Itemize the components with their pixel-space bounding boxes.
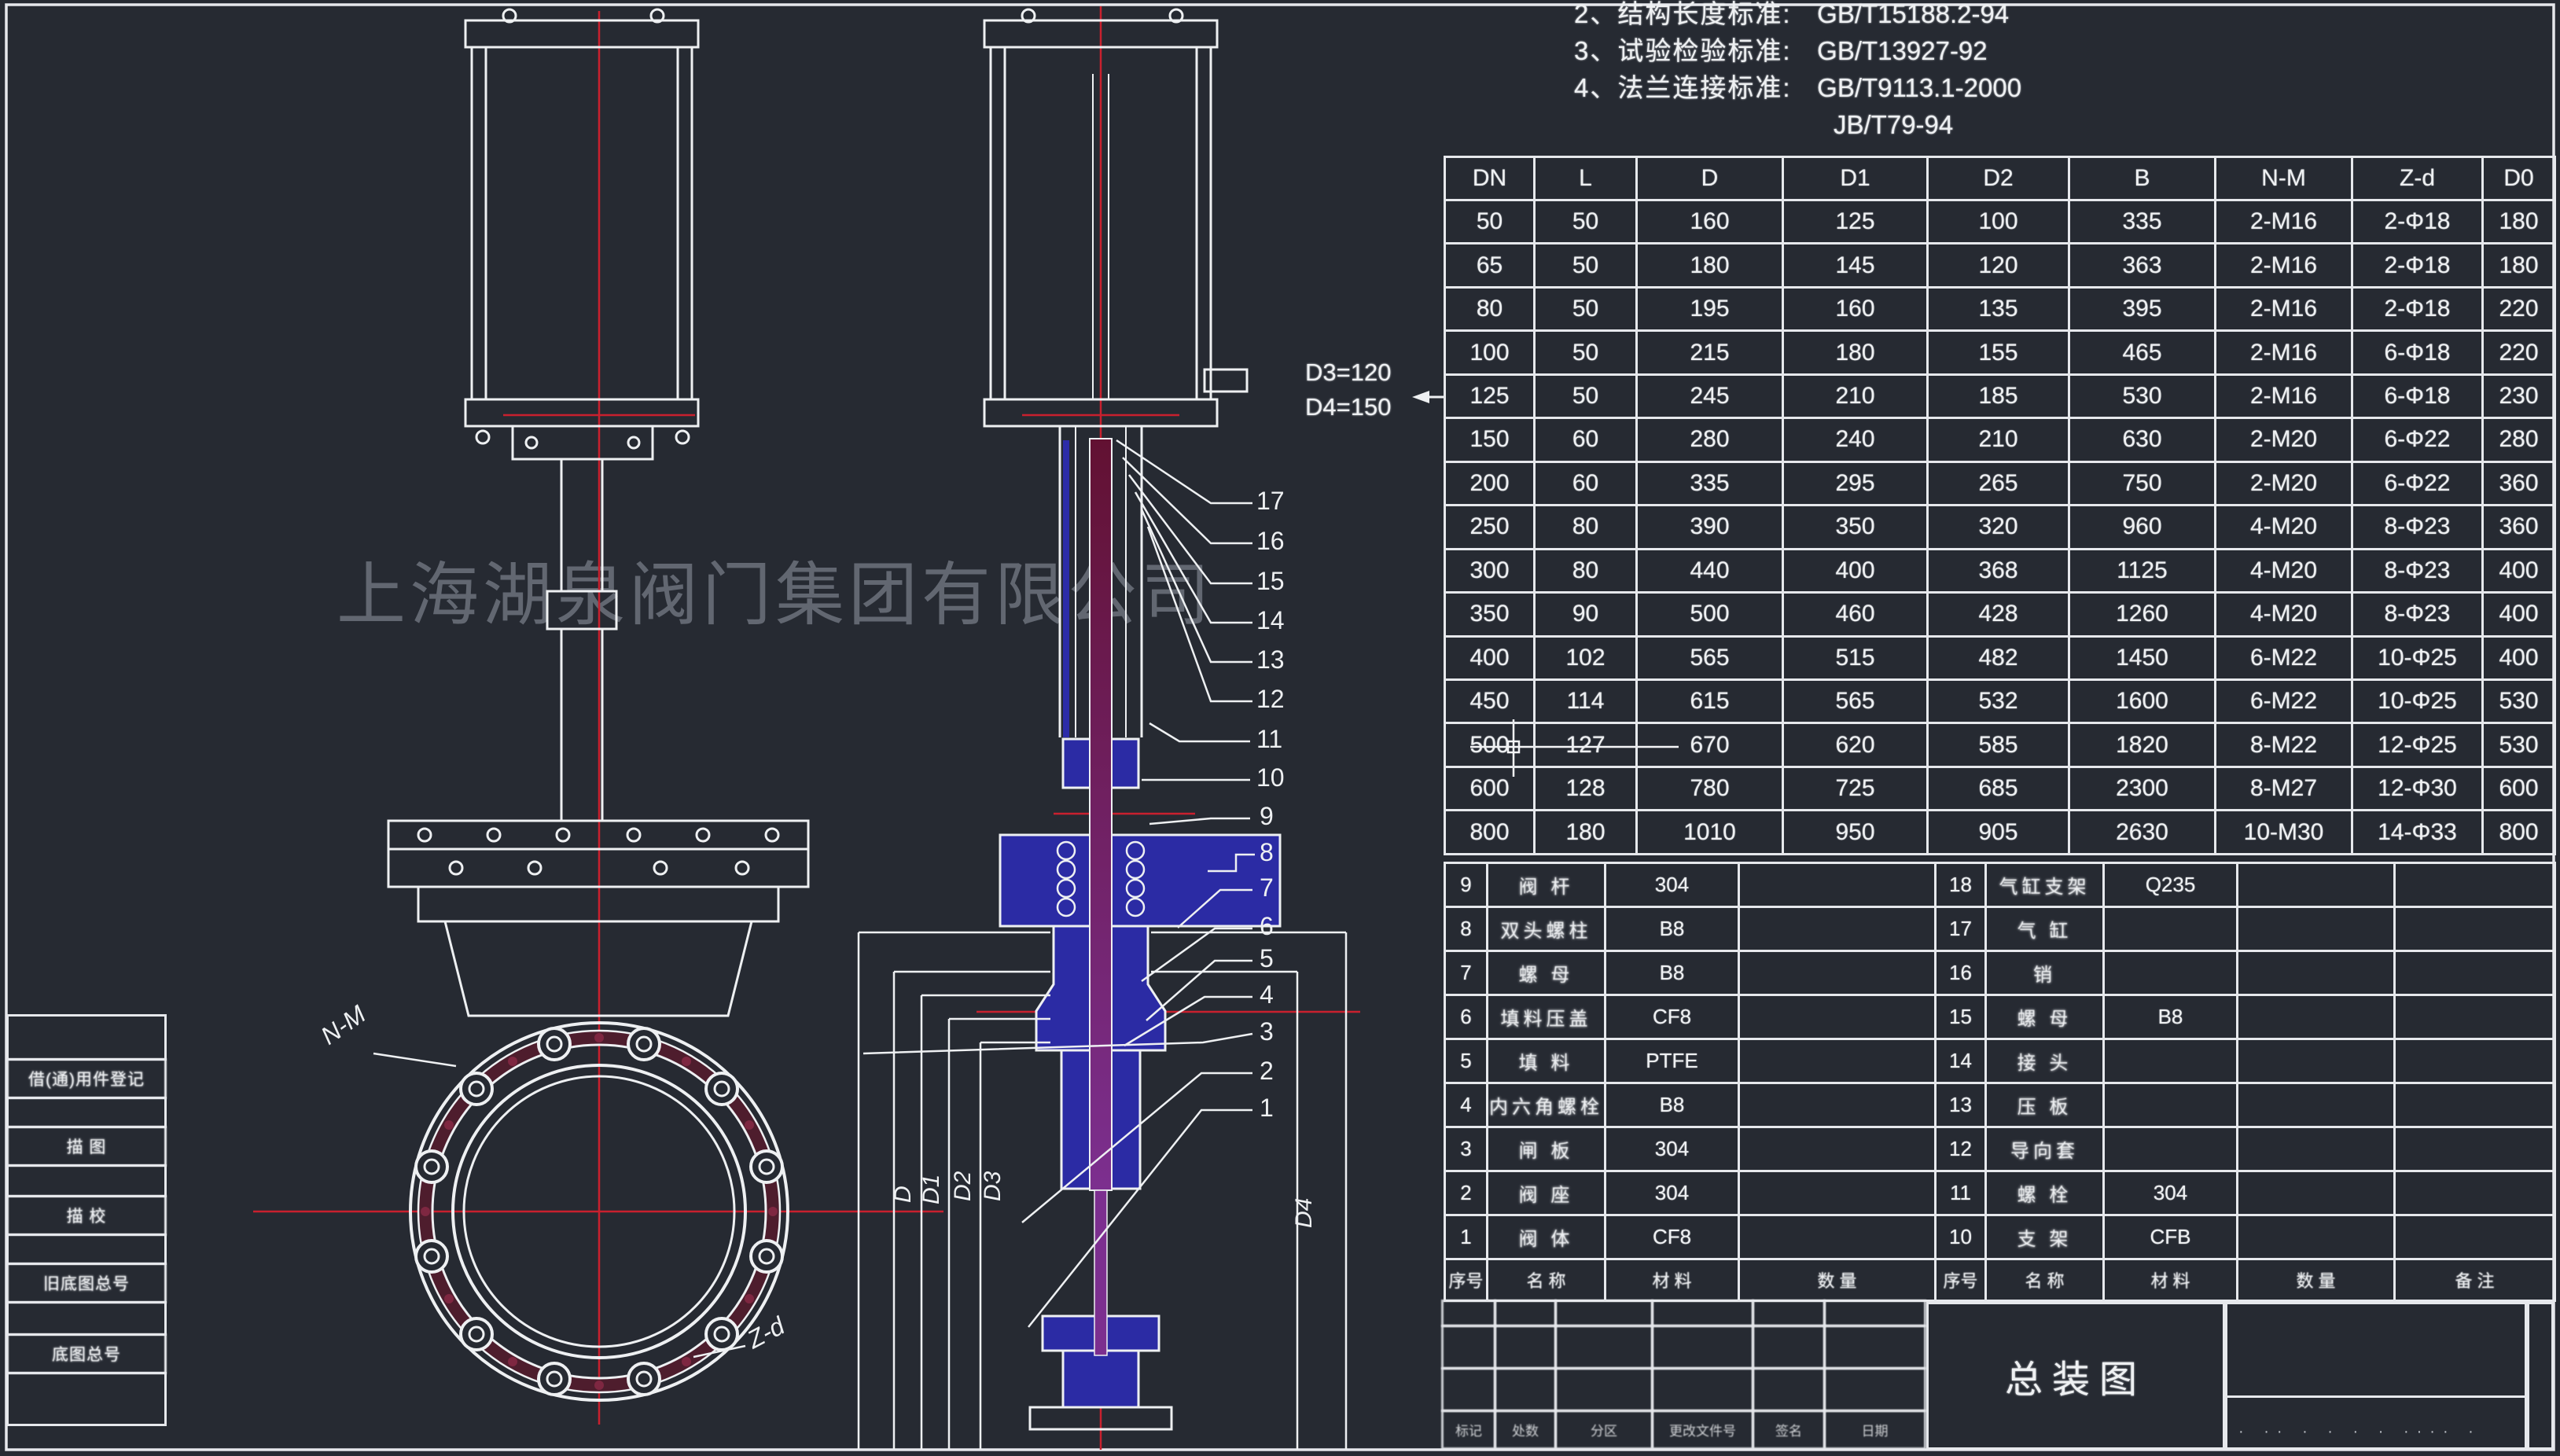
col-header: D1 [1783,157,1928,200]
nm-label: N-M [315,999,370,1050]
svg-text:16: 16 [1256,527,1285,555]
table-row: 9阀 杆304 [1445,863,1936,907]
margin-label: 底图总号 [6,1333,167,1374]
table-row: 11螺 栓304 [1936,1171,2555,1215]
table-cell: 1010 [1637,811,1783,855]
table-cell: 180 [1783,331,1928,374]
table-row: 65501801451203632-M162-Φ18180 [1445,244,2555,287]
margin-label: 描 校 [6,1195,167,1236]
svg-text:10: 10 [1256,763,1285,792]
table-cell [2238,863,2395,907]
table-cell: CFB [2104,1215,2238,1259]
table-row: 18气缸支架Q235 [1936,863,2555,907]
annotation-arrow [1412,391,1445,403]
bom-col-header: 数 量 [1739,1259,1936,1301]
bom-col-header: 备 注 [2395,1259,2555,1301]
table-row: 2阀 座304 [1445,1171,1936,1215]
margin-label: 借(通)用件登记 [6,1058,167,1099]
table-cell: 670 [1637,723,1783,767]
svg-text:15: 15 [1256,567,1285,595]
table-cell: 2-Φ18 [2352,287,2483,330]
table-cell [2238,995,2395,1039]
svg-text:13: 13 [1256,645,1285,674]
table-cell: 14-Φ33 [2352,811,2483,855]
table-cell: 335 [2069,200,2216,244]
table-cell [1739,863,1936,907]
table-cell: 180 [2483,244,2555,287]
col-header: N-M [2216,157,2352,200]
table-cell: 482 [1928,636,2069,679]
table-cell [2395,1083,2555,1127]
table-cell [2104,1039,2238,1083]
table-cell: 280 [1637,418,1783,461]
svg-text:5: 5 [1260,944,1274,973]
table-cell: 615 [1637,679,1783,722]
table-cell: 600 [1445,767,1535,810]
table-cell: 125 [1783,200,1928,244]
margin-blank-box [6,1372,167,1426]
table-cell: 500 [1637,593,1783,636]
table-cell: 102 [1535,636,1637,679]
table-cell: 400 [1445,636,1535,679]
table-cell: 905 [1928,811,2069,855]
table-cell: 50 [1445,200,1535,244]
table-cell: 600 [2483,767,2555,810]
table-cell [2238,951,2395,995]
table-cell: 180 [2483,200,2555,244]
table-cell: 阀 杆 [1488,863,1606,907]
table-cell: 428 [1928,593,2069,636]
table-row: 1阀 体CF8 [1445,1215,1936,1259]
table-cell: 120 [1928,244,2069,287]
table-cell: 950 [1783,811,1928,855]
table-row: 100502151801554652-M166-Φ18220 [1445,331,2555,374]
table-cell: 65 [1445,244,1535,287]
table-row: 3509050046042812604-M208-Φ23400 [1445,593,2555,636]
dim-d3: D3 [980,1171,1006,1201]
col-header: D [1637,157,1783,200]
svg-text:14: 14 [1256,606,1285,634]
table-cell: 12 [1936,1127,1986,1171]
margin-blank-box [6,1014,167,1061]
table-cell: 585 [1928,723,2069,767]
table-cell: 530 [2483,679,2555,722]
svg-text:8: 8 [1260,838,1274,866]
table-cell: 8-M27 [2216,767,2352,810]
table-row: 13压 板 [1936,1083,2555,1127]
table-cell: 565 [1637,636,1783,679]
svg-text:4: 4 [1260,980,1274,1009]
table-cell [2395,907,2555,951]
table-row: 10支 架CFB [1936,1215,2555,1259]
table-cell: 50 [1535,331,1637,374]
table-cell: 565 [1783,679,1928,722]
table-cell: 闸 板 [1488,1127,1606,1171]
table-cell: 360 [2483,461,2555,505]
svg-text:2: 2 [1260,1057,1274,1085]
table-cell: 2-M16 [2216,331,2352,374]
table-cell [2395,1127,2555,1171]
table-cell: 11 [1936,1171,1986,1215]
tb-small-label: 签名 [1752,1410,1826,1450]
table-cell [2238,1039,2395,1083]
table-row: 12导向套 [1936,1127,2555,1171]
table-cell: 50 [1535,244,1637,287]
table-cell [2238,1127,2395,1171]
table-cell: 245 [1637,374,1783,417]
table-cell: 265 [1928,461,2069,505]
table-cell: 395 [2069,287,2216,330]
table-cell: 50 [1535,200,1637,244]
table-cell: 8-Φ23 [2352,506,2483,549]
table-cell: 50 [1535,374,1637,417]
table-cell: 6-Φ18 [2352,331,2483,374]
table-cell [1739,1083,1936,1127]
table-row: 7螺 母B8 [1445,951,1936,995]
table-row: 3闸 板304 [1445,1127,1936,1171]
table-cell: 13 [1936,1083,1986,1127]
table-cell: 1450 [2069,636,2216,679]
table-cell: 6 [1445,995,1488,1039]
table-cell: 750 [2069,461,2216,505]
margin-strip: 借(通)用件登记 描 图 描 校 旧底图总号 底图总号 [6,1017,167,1450]
table-cell [1739,995,1936,1039]
table-cell [2395,1039,2555,1083]
table-cell: 127 [1535,723,1637,767]
margin-label: 描 图 [6,1126,167,1167]
col-header: Z-d [2352,157,2483,200]
dim-table-header-row: DN L D D1 D2 B N-M Z-d D0 [1445,157,2555,200]
bom-col-header: 材 料 [2104,1259,2238,1301]
table-cell: 14 [1936,1039,1986,1083]
table-cell: B8 [1606,1083,1739,1127]
table-cell: 145 [1783,244,1928,287]
table-row: 16销 [1936,951,2555,995]
table-row: 150602802402106302-M206-Φ22280 [1445,418,2555,461]
table-cell: 2300 [2069,767,2216,810]
table-cell: 80 [1445,287,1535,330]
bom-col-header: 名 称 [1488,1259,1606,1301]
table-cell: 双头螺柱 [1488,907,1606,951]
table-cell: 400 [2483,549,2555,592]
table-cell: 12-Φ30 [2352,767,2483,810]
table-cell: 960 [2069,506,2216,549]
svg-text:6: 6 [1260,912,1274,940]
table-cell: 350 [1783,506,1928,549]
table-cell: 2 [1445,1171,1488,1215]
table-cell [1739,1127,1936,1171]
d3-d4-annotation: D3=120 D4=150 [1305,355,1391,425]
table-cell: 390 [1637,506,1783,549]
table-cell: 515 [1783,636,1928,679]
margin-blank-box [6,1164,167,1197]
table-cell: 114 [1535,679,1637,722]
table-cell: 304 [1606,863,1739,907]
table-cell: 620 [1783,723,1928,767]
table-cell: 阀 座 [1488,1171,1606,1215]
table-cell: 4-M20 [2216,506,2352,549]
table-cell: 2-Φ18 [2352,244,2483,287]
table-cell: 2-M20 [2216,461,2352,505]
table-cell: 150 [1445,418,1535,461]
table-cell: 螺 母 [1488,951,1606,995]
svg-text:3: 3 [1260,1017,1274,1046]
table-cell: 304 [2104,1171,2238,1215]
col-header: B [2069,157,2216,200]
table-cell: 1260 [2069,593,2216,636]
table-cell: B8 [2104,995,2238,1039]
table-cell: 8 [1445,907,1488,951]
table-cell: 5 [1445,1039,1488,1083]
table-cell: 160 [1637,200,1783,244]
table-cell: 内六角螺栓 [1488,1083,1606,1127]
table-cell: 18 [1936,863,1986,907]
table-cell: 800 [2483,811,2555,855]
table-cell: 220 [2483,331,2555,374]
table-cell [2238,1171,2395,1215]
dim-d1: D1 [918,1175,944,1204]
table-cell: 220 [2483,287,2555,330]
cad-sheet: 上海湖泉阀门集团有限公司 [0,0,2560,1456]
table-cell [2238,1215,2395,1259]
table-cell: 16 [1936,951,1986,995]
table-cell: 螺 栓 [1986,1171,2104,1215]
table-cell: 12-Φ25 [2352,723,2483,767]
tb-small-label: 标记 [1441,1410,1496,1450]
table-cell: 2-M20 [2216,418,2352,461]
table-row: 17气 缸 [1936,907,2555,951]
table-cell: 450 [1445,679,1535,722]
table-cell: 1600 [2069,679,2216,722]
table-cell: 725 [1783,767,1928,810]
faint-signature-dots: · ·· · · · · ···· · [2227,1423,2481,1447]
table-cell: 685 [1928,767,2069,810]
table-cell: 10-Φ25 [2352,636,2483,679]
bom-header-right: 序号 名 称 材 料 数 量 备 注 [1934,1258,2556,1302]
svg-text:11: 11 [1256,725,1282,753]
table-cell: 2-M16 [2216,244,2352,287]
table-cell [2238,907,2395,951]
tb-small-label: 日期 [1823,1410,1926,1450]
titleblock-edge-cell [2527,1302,2554,1450]
table-cell: 接 头 [1986,1039,2104,1083]
callout-numbers: 17 16 15 14 13 12 11 10 9 8 7 6 5 4 3 2 … [1256,487,1285,1122]
table-cell: 530 [2483,723,2555,767]
table-cell: 2-M16 [2216,200,2352,244]
table-cell: 2-M16 [2216,287,2352,330]
margin-label: 旧底图总号 [6,1263,167,1303]
table-cell: 螺 母 [1986,995,2104,1039]
table-cell: 180 [1637,244,1783,287]
table-cell: B8 [1606,907,1739,951]
table-cell: 250 [1445,506,1535,549]
standards-line: 4、法兰连接标准: GB/T9113.1-2000 [1574,69,2021,106]
table-row: 8双头螺柱B8 [1445,907,1936,951]
table-cell [2395,1215,2555,1259]
table-cell: 6-Φ18 [2352,374,2483,417]
table-row: 50501601251003352-M162-Φ18180 [1445,200,2555,244]
col-header: DN [1445,157,1535,200]
table-cell: 300 [1445,549,1535,592]
table-cell: B8 [1606,951,1739,995]
standards-line: 2、结构长度标准: GB/T15188.2-94 [1574,0,2021,32]
table-cell: 4-M20 [2216,549,2352,592]
table-cell [1739,1039,1936,1083]
table-cell: 3 [1445,1127,1488,1171]
table-cell: 363 [2069,244,2216,287]
table-cell: 6-M22 [2216,636,2352,679]
valve-stem [1090,439,1112,1355]
table-row: 125502452101855302-M166-Φ18230 [1445,374,2555,417]
table-cell: 368 [1928,549,2069,592]
dim-d4: D4 [1291,1198,1317,1228]
table-cell: 10-M30 [2216,811,2352,855]
table-row: 60012878072568523008-M2712-Φ30600 [1445,767,2555,810]
col-header: D0 [2483,157,2555,200]
table-cell: 6-Φ22 [2352,418,2483,461]
table-cell: 10-Φ25 [2352,679,2483,722]
titleblock-right: · ·· · · · · ···· · [2225,1302,2527,1450]
table-cell: 125 [1445,374,1535,417]
margin-blank-box [6,1234,167,1265]
table-cell: 350 [1445,593,1535,636]
table-cell: 335 [1637,461,1783,505]
table-cell: 2-Φ18 [2352,200,2483,244]
titleblock-right-lower: · ·· · · · · ···· · [2225,1395,2527,1450]
table-cell: 15 [1936,995,1986,1039]
drawing-title: 总装图 [1926,1302,2225,1450]
table-cell: 530 [2069,374,2216,417]
bom-col-header: 序号 [1445,1259,1488,1301]
tb-small-label: 更改文件号 [1651,1410,1754,1450]
table-cell: 1 [1445,1215,1488,1259]
table-cell: 压 板 [1986,1083,2104,1127]
table-cell [2104,907,2238,951]
table-cell [2104,1083,2238,1127]
bom-col-header: 材 料 [1606,1259,1739,1301]
table-cell: 60 [1535,461,1637,505]
table-cell: 销 [1986,951,2104,995]
table-cell: 1125 [2069,549,2216,592]
table-row: 6填料压盖CF8 [1445,995,1936,1039]
table-cell: 200 [1445,461,1535,505]
dim-d: D [890,1186,916,1203]
table-cell: 导向套 [1986,1127,2104,1171]
table-cell: 360 [2483,506,2555,549]
table-cell: 440 [1637,549,1783,592]
bom-table-left: 9阀 杆3048双头螺柱B87螺 母B86填料压盖CF85填 料PTFE4内六角… [1444,862,1937,1260]
svg-text:1: 1 [1260,1094,1274,1122]
table-cell: 10 [1936,1215,1986,1259]
table-cell: 60 [1535,418,1637,461]
margin-blank-box [6,1097,167,1128]
table-row: 8001801010950905263010-M3014-Φ33800 [1445,811,2555,855]
table-cell: 8-Φ23 [2352,593,2483,636]
table-cell: 320 [1928,506,2069,549]
table-cell: 阀 体 [1488,1215,1606,1259]
standards-line: 3、试验检验标准: GB/T13927-92 [1574,32,2021,69]
table-cell [1739,907,1936,951]
titleblock-grid: 标记 处数 分区 更改文件号 签名 日期 [1444,1302,1926,1450]
table-cell: 80 [1535,506,1637,549]
table-cell: 210 [1928,418,2069,461]
table-row: 250803903503209604-M208-Φ23360 [1445,506,2555,549]
table-cell: 800 [1445,811,1535,855]
table-cell: 780 [1637,767,1783,810]
table-cell: 215 [1637,331,1783,374]
margin-blank-box [6,1301,167,1336]
table-cell: 8-Φ23 [2352,549,2483,592]
table-cell [2395,863,2555,907]
bom-header-left: 序号 名 称 材 料 数 量 [1444,1258,1937,1302]
table-cell [2395,1171,2555,1215]
table-cell: 155 [1928,331,2069,374]
table-cell: 230 [2483,374,2555,417]
table-row: 45011461556553216006-M2210-Φ25530 [1445,679,2555,722]
table-cell: 4-M20 [2216,593,2352,636]
table-cell: 17 [1936,907,1986,951]
table-cell: 2630 [2069,811,2216,855]
table-cell: Q235 [2104,863,2238,907]
table-cell: 4 [1445,1083,1488,1127]
table-cell: 气缸支架 [1986,863,2104,907]
table-cell: 400 [2483,593,2555,636]
table-row: 15螺 母B8 [1936,995,2555,1039]
table-cell: 400 [1783,549,1928,592]
table-cell: 填 料 [1488,1039,1606,1083]
bom-col-header: 数 量 [2238,1259,2395,1301]
table-cell: 6-Φ22 [2352,461,2483,505]
table-cell: 500 [1445,723,1535,767]
table-cell: 100 [1445,331,1535,374]
col-header: L [1535,157,1637,200]
table-cell: 128 [1535,767,1637,810]
table-cell: 填料压盖 [1488,995,1606,1039]
col-header: D2 [1928,157,2069,200]
svg-text:17: 17 [1256,487,1285,515]
table-cell: 8-M22 [2216,723,2352,767]
table-cell: 210 [1783,374,1928,417]
standards-notes: 2、结构长度标准: GB/T15188.2-94 3、试验检验标准: GB/T1… [1574,0,2021,143]
table-cell: 400 [2483,636,2555,679]
table-cell: 460 [1783,593,1928,636]
table-cell: 支 架 [1986,1215,2104,1259]
table-row: 40010256551548214506-M2210-Φ25400 [1445,636,2555,679]
dim-d2: D2 [950,1171,976,1201]
table-cell [2395,951,2555,995]
table-cell: 9 [1445,863,1488,907]
tb-small-label: 分区 [1554,1410,1653,1450]
table-cell: 2-M16 [2216,374,2352,417]
table-cell: 180 [1535,811,1637,855]
table-cell [2104,951,2238,995]
table-cell: 630 [2069,418,2216,461]
table-cell: 气 缸 [1986,907,2104,951]
table-row: 14接 头 [1936,1039,2555,1083]
bom-table-right: 18气缸支架Q23517气 缸16销15螺 母B814接 头13压 板12导向套… [1934,862,2556,1260]
table-cell: 280 [2483,418,2555,461]
table-cell: 90 [1535,593,1637,636]
table-cell: 6-M22 [2216,679,2352,722]
table-cell: 160 [1783,287,1928,330]
tb-small-label: 处数 [1494,1410,1557,1450]
table-cell: 185 [1928,374,2069,417]
table-cell: 304 [1606,1127,1739,1171]
bom-col-header: 名 称 [1986,1259,2104,1301]
table-cell: 50 [1535,287,1637,330]
table-cell: 304 [1606,1171,1739,1215]
table-row: 4内六角螺栓B8 [1445,1083,1936,1127]
